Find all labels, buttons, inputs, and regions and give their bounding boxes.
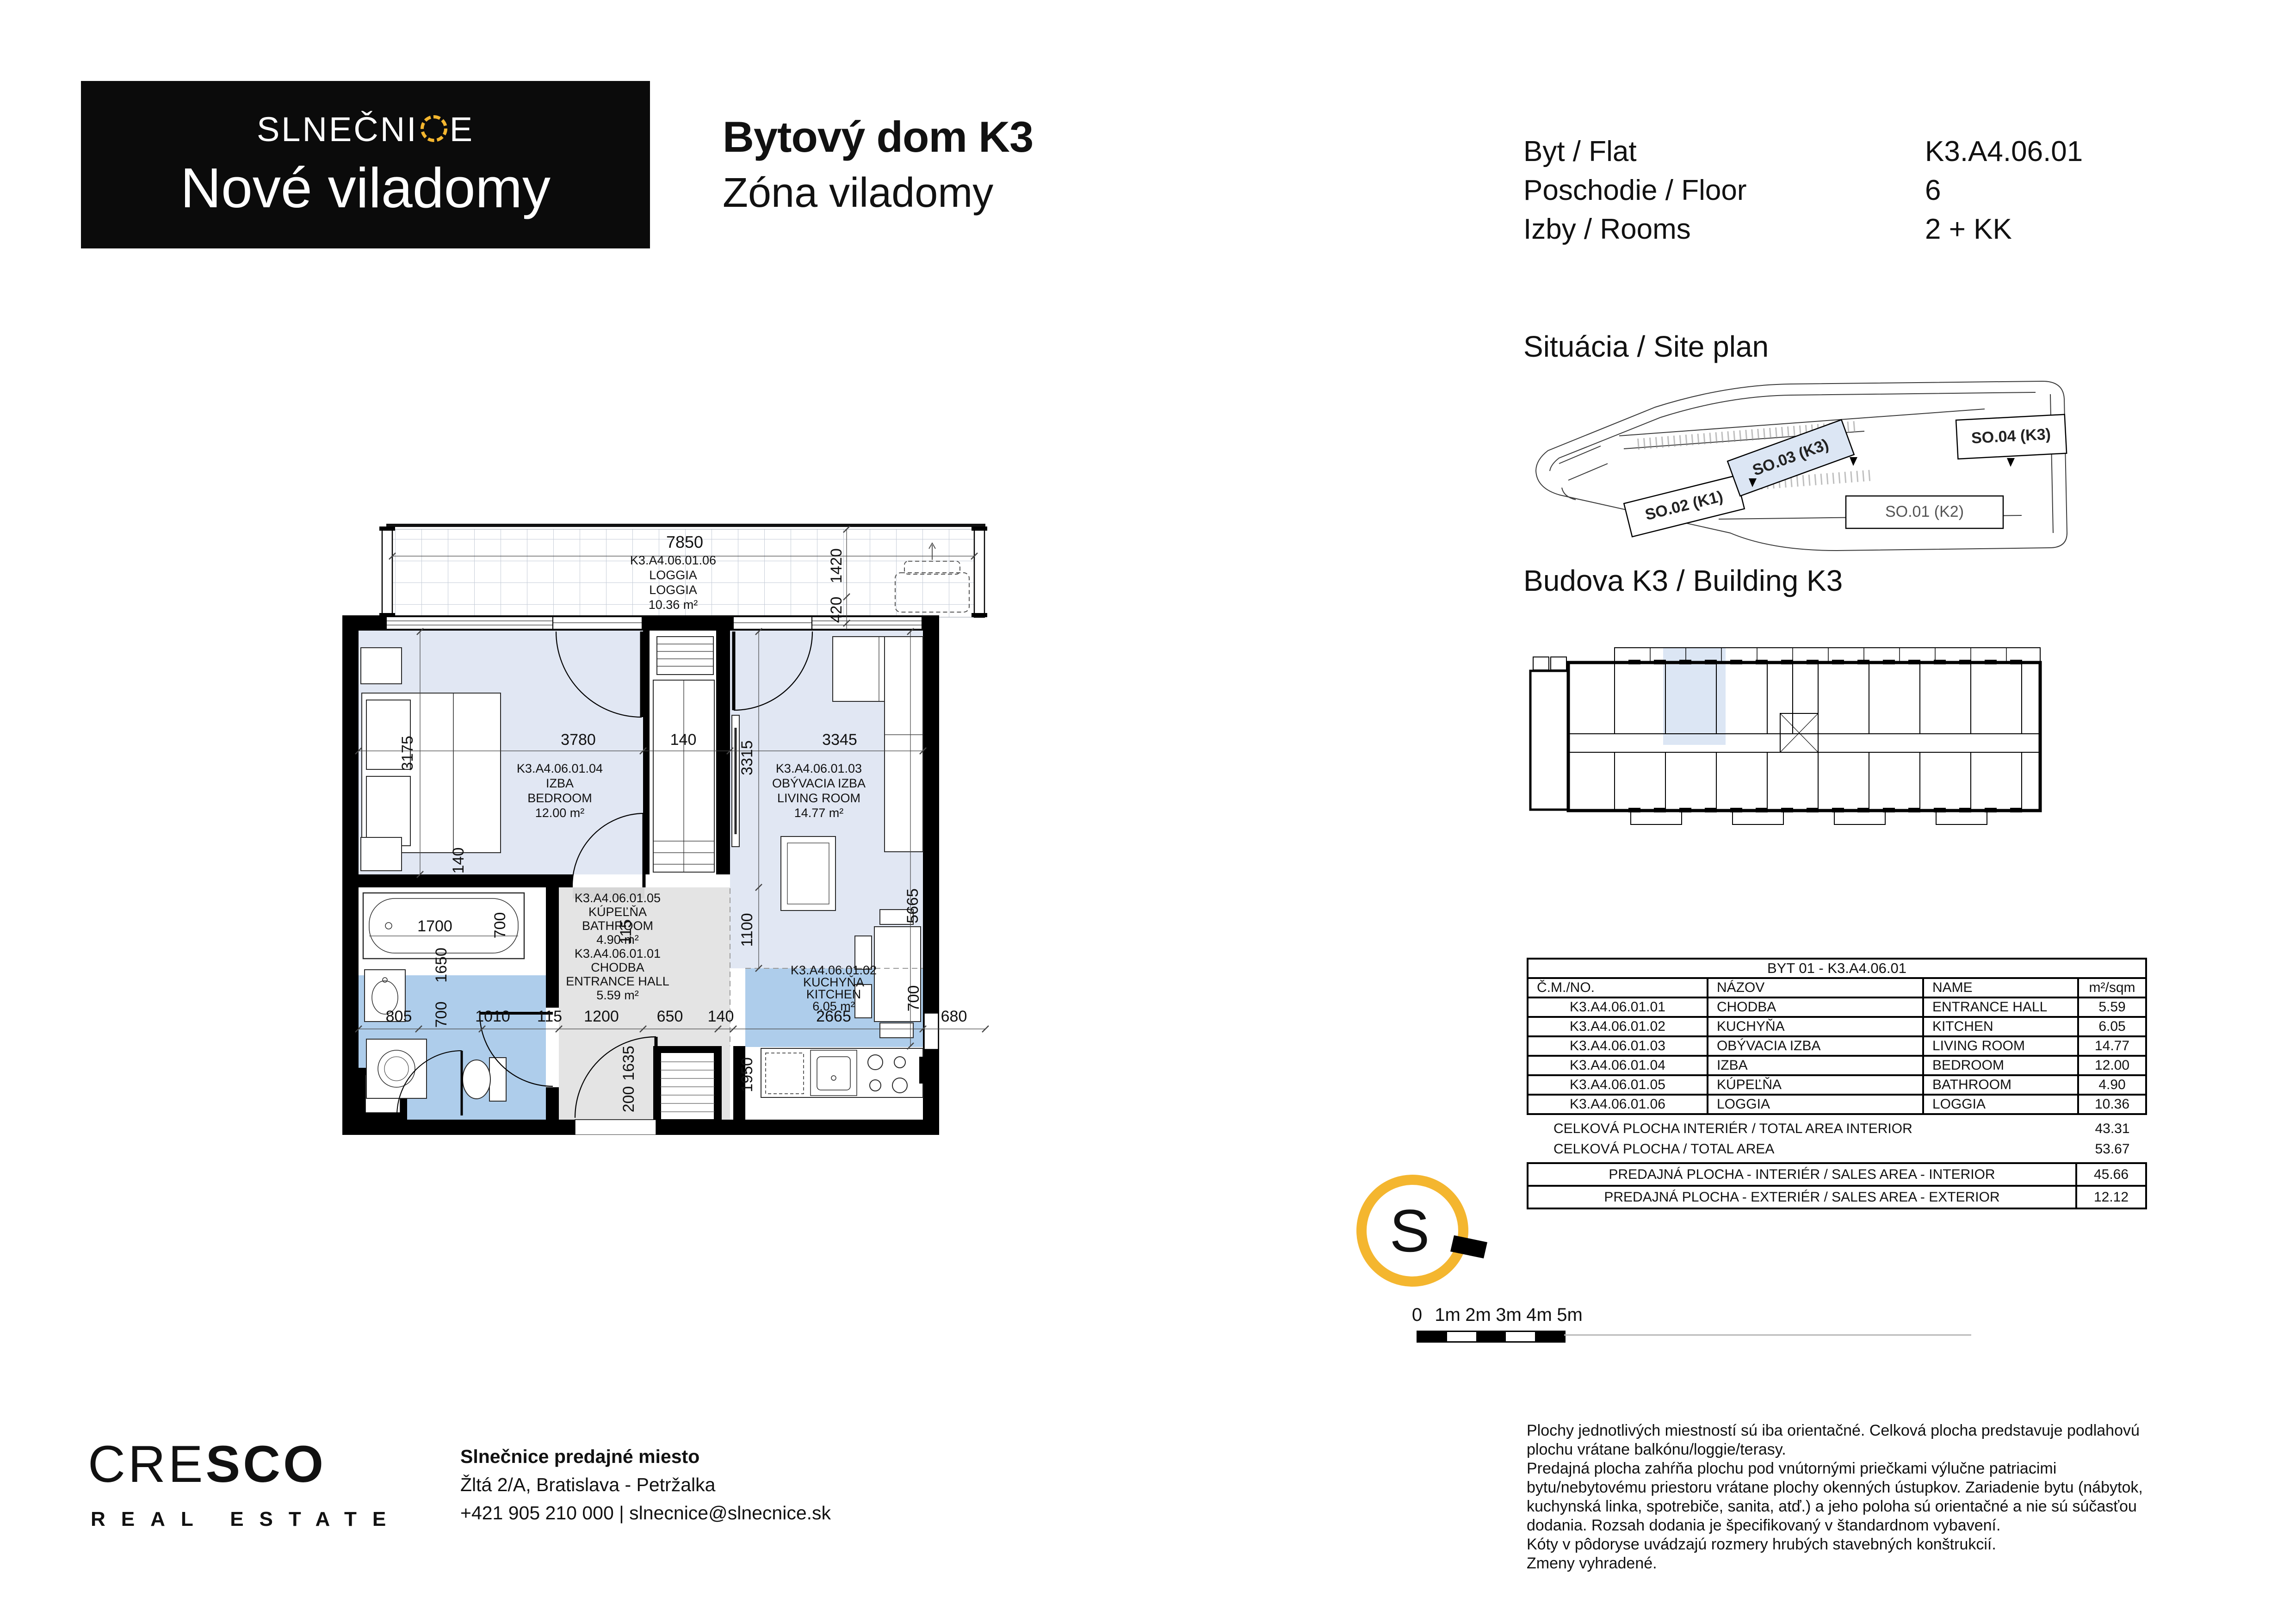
contact-name: Slnečnice predajné miesto — [460, 1443, 831, 1471]
cell-area: 6.05 — [2078, 1017, 2146, 1036]
room-name-sk: IZBA — [546, 776, 574, 790]
disclaimer-line: Predajná plocha zahŕňa plochu pod vnútor… — [1527, 1459, 2258, 1478]
flat-row: Poschodie / Floor6 — [1523, 174, 2083, 213]
cresco-wordmark: CRESCO — [88, 1434, 402, 1494]
chair — [880, 1023, 913, 1038]
scale-label: 4m — [1526, 1305, 1552, 1326]
dim: 7850 — [666, 533, 703, 551]
dim: 680 — [941, 1008, 967, 1025]
pillow — [366, 776, 410, 846]
dim: 3175 — [399, 736, 416, 771]
cell-no: K3.A4.06.01.03 — [1528, 1036, 1708, 1056]
cell-sk: KUCHYŇA — [1708, 1017, 1923, 1036]
disclaimer-line: Zmeny vyhradené. — [1527, 1554, 2258, 1573]
scale-labels: 0 1m 2m 3m 4m 5m — [1417, 1305, 1574, 1325]
dim: 1700 — [417, 917, 452, 935]
loggia-railing — [386, 524, 985, 527]
room-area: 6.05 m² — [812, 999, 855, 1013]
stair-shaft — [661, 1053, 714, 1120]
room-code: K3.A4.06.01.06 — [630, 553, 716, 567]
cresco-bold: SCO — [205, 1435, 326, 1493]
room-name-sk: LOGGIA — [649, 568, 697, 582]
dim: 140 — [450, 848, 467, 874]
dim: 1200 — [584, 1008, 619, 1025]
total-label: CELKOVÁ PLOCHA / TOTAL AREA — [1553, 1141, 2078, 1157]
total-row: CELKOVÁ PLOCHA / TOTAL AREA 53.67 — [1527, 1139, 2147, 1159]
table-row: K3.A4.06.01.01 CHODBA ENTRANCE HALL 5.59 — [1528, 997, 2146, 1017]
scale-segment — [1506, 1332, 1535, 1341]
sales-area-row: PREDAJNÁ PLOCHA - EXTERIÉR / SALES AREA … — [1527, 1185, 2147, 1209]
site-building-so02: SO.02 (K1) — [1624, 476, 1744, 537]
brand-subtitle: Nové viladomy — [180, 155, 551, 220]
dim: 3345 — [822, 731, 857, 749]
room-code: K3.A4.06.01.05 — [575, 891, 661, 905]
brand-name-pre: SLNEČNI — [257, 110, 418, 149]
dim: 420 — [828, 597, 845, 623]
compass: S — [1349, 1166, 1497, 1300]
cell-area: 5.59 — [2078, 997, 2146, 1017]
flat-label: Poschodie / Floor — [1523, 174, 1925, 207]
scale-label: 5m — [1557, 1305, 1583, 1326]
dim: 805 — [386, 1008, 412, 1025]
flat-value: 6 — [1925, 174, 1941, 206]
col-header: NÁZOV — [1708, 978, 1923, 997]
disclaimer-line: Plochy jednotlivých miestností sú iba or… — [1527, 1421, 2258, 1440]
building-windows-bottom — [1619, 808, 2036, 812]
dim: 5665 — [904, 888, 922, 923]
area-table: BYT 01 - K3.A4.06.01 Č.M./NO. NÁZOV NAME… — [1527, 958, 2147, 1209]
scale-segment — [1418, 1332, 1447, 1341]
dim: 1010 — [475, 1008, 510, 1025]
dresser — [361, 837, 402, 871]
cell-no: K3.A4.06.01.02 — [1528, 1017, 1708, 1036]
table-title: BYT 01 - K3.A4.06.01 — [1528, 959, 2146, 978]
site-building-so04: SO.04 (K3) — [1956, 415, 2067, 459]
room-area: 10.36 m² — [649, 598, 698, 612]
dim: 700 — [433, 1002, 450, 1028]
room-code: K3.A4.06.01.01 — [575, 947, 661, 960]
site-plan-map: SO.02 (K1) SO.03 (K3) SO.04 (K3) SO.01 (… — [1531, 380, 2073, 555]
total-value: 45.66 — [2075, 1164, 2145, 1185]
room-area: 14.77 m² — [794, 806, 844, 820]
cell-sk: OBÝVACIA IZBA — [1708, 1036, 1923, 1056]
kitchen-vent — [919, 1057, 924, 1084]
dim: 140 — [708, 1008, 734, 1025]
cell-en: ENTRANCE HALL — [1923, 997, 2078, 1017]
total-value: 53.67 — [2078, 1141, 2147, 1157]
disclaimer-line: plochu vrátane balkónu/loggie/terasy. — [1527, 1440, 2258, 1459]
dim: 650 — [657, 1008, 683, 1025]
room-code: K3.A4.06.01.04 — [517, 762, 603, 775]
floorplan-sheet: SLNEČNIE Nové viladomy Bytový dom K3 Zón… — [0, 0, 2296, 1623]
dim: 700 — [905, 985, 922, 1012]
disclaimer-line: dodania. Rozsah dodania je špecifikovaný… — [1527, 1516, 2258, 1535]
dim: 1950 — [738, 1057, 756, 1092]
col-header: Č.M./NO. — [1528, 978, 1708, 997]
table-row: K3.A4.06.01.05 KÚPEĽŇA BATHROOM 4.90 — [1528, 1075, 2146, 1095]
flat-info: Byt / FlatK3.A4.06.01 Poschodie / Floor6… — [1523, 135, 2083, 252]
flat-floor-plan: 7850 1420 420 3780 140 3345 3175 140 331… — [342, 517, 990, 1135]
bedroom-window — [386, 617, 553, 629]
room-name-en: BATHROOM — [582, 919, 653, 933]
dim: 1100 — [738, 913, 756, 947]
cell-sk: KÚPEĽŇA — [1708, 1075, 1923, 1095]
cell-area: 12.00 — [2078, 1056, 2146, 1075]
brand-name-post: E — [450, 110, 474, 149]
room-name-en: LOGGIA — [649, 583, 697, 597]
cell-no: K3.A4.06.01.01 — [1528, 997, 1708, 1017]
cell-area: 4.90 — [2078, 1075, 2146, 1095]
cell-en: LOGGIA — [1923, 1095, 2078, 1114]
flat-value: 2 + KK — [1925, 213, 2012, 245]
scale-segment — [1535, 1332, 1564, 1341]
total-row: CELKOVÁ PLOCHA INTERIÉR / TOTAL AREA INT… — [1527, 1119, 2147, 1139]
dim: 3315 — [738, 740, 756, 775]
dim: 115 — [537, 1008, 562, 1025]
scale-bar — [1417, 1331, 1566, 1343]
dim: 140 — [670, 731, 697, 749]
disclaimer: Plochy jednotlivých miestností sú iba or… — [1527, 1421, 2258, 1573]
scale-segment — [1476, 1332, 1505, 1341]
flat-value: K3.A4.06.01 — [1925, 136, 2083, 167]
table-row: K3.A4.06.01.02 KUCHYŇA KITCHEN 6.05 — [1528, 1017, 2146, 1036]
sun-icon — [421, 115, 447, 142]
table-row: K3.A4.06.01.06 LOGGIA LOGGIA 10.36 — [1528, 1095, 2146, 1114]
total-value: 43.31 — [2078, 1121, 2147, 1137]
cell-en: BATHROOM — [1923, 1075, 2078, 1095]
contact-block: Slnečnice predajné miesto Žltá 2/A, Brat… — [460, 1443, 831, 1527]
total-label: PREDAJNÁ PLOCHA - INTERIÉR / SALES AREA … — [1529, 1164, 2075, 1185]
brand-logo: SLNEČNIE Nové viladomy — [81, 81, 650, 248]
total-label: PREDAJNÁ PLOCHA - EXTERIÉR / SALES AREA … — [1529, 1187, 2075, 1208]
cell-no: K3.A4.06.01.05 — [1528, 1075, 1708, 1095]
cresco-logo: CRESCO REAL ESTATE — [88, 1434, 402, 1531]
toilet — [489, 1058, 506, 1101]
scale-segment — [1447, 1332, 1476, 1341]
disclaimer-line: kuchynská linka, spotrebiče, sanita, atď… — [1527, 1497, 2258, 1516]
room-code: K3.A4.06.01.03 — [776, 762, 862, 775]
site-building-so01: SO.01 (K2) — [1846, 496, 2003, 528]
dim: 3780 — [561, 731, 596, 749]
page-subtitle: Zóna viladomy — [723, 169, 1033, 217]
cell-en: LIVING ROOM — [1923, 1036, 2078, 1056]
table-row: K3.A4.06.01.03 OBÝVACIA IZBA LIVING ROOM… — [1528, 1036, 2146, 1056]
dim: 700 — [491, 912, 509, 939]
table-header-row: Č.M./NO. NÁZOV NAME m²/sqm — [1528, 978, 2146, 997]
bedside-table — [361, 648, 402, 684]
washing-machine — [366, 1039, 427, 1098]
scale-extension-line — [1564, 1334, 1971, 1336]
cell-sk: IZBA — [1708, 1056, 1923, 1075]
contact-address: Žltá 2/A, Bratislava - Petržalka — [460, 1471, 831, 1499]
room-name-sk: CHODBA — [591, 960, 644, 974]
sofa-side — [885, 637, 923, 852]
building-heading: Budova K3 / Building K3 — [1523, 564, 1843, 598]
total-label: CELKOVÁ PLOCHA INTERIÉR / TOTAL AREA INT… — [1553, 1121, 2078, 1137]
scale-label: 0 — [1412, 1305, 1422, 1326]
room-area: 5.59 m² — [596, 988, 639, 1002]
table-row: K3.A4.06.01.04 IZBA BEDROOM 12.00 — [1528, 1056, 2146, 1075]
building-windows-top — [1619, 660, 2036, 664]
col-header: NAME — [1923, 978, 2078, 997]
disclaimer-line: Kóty v pôdoryse uvádzajú rozmery hrubých… — [1527, 1535, 2258, 1554]
document-title: Bytový dom K3 Zóna viladomy — [723, 112, 1033, 217]
cell-area: 10.36 — [2078, 1095, 2146, 1114]
cell-area: 14.77 — [2078, 1036, 2146, 1056]
page-title: Bytový dom K3 — [723, 112, 1033, 162]
cresco-subtitle: REAL ESTATE — [91, 1508, 402, 1531]
compass-letter: S — [1390, 1197, 1430, 1264]
room-name-sk: KÚPEĽŇA — [588, 904, 647, 919]
total-value: 12.12 — [2075, 1187, 2145, 1208]
room-area: 4.90 m² — [596, 933, 639, 947]
room-name-en: LIVING ROOM — [777, 791, 860, 805]
cell-sk: LOGGIA — [1708, 1095, 1923, 1114]
building-structure — [1530, 648, 2040, 824]
flat-label: Byt / Flat — [1523, 135, 1925, 168]
kitchen-furniture — [761, 1048, 924, 1097]
scale-label: 2m — [1465, 1305, 1491, 1326]
coffee-table — [781, 836, 835, 911]
site-plan-heading: Situácia / Site plan — [1523, 329, 1769, 364]
closet-strip — [653, 637, 714, 872]
dim: 1635 — [620, 1046, 637, 1081]
room-area: 12.00 m² — [535, 806, 585, 820]
flat-row: Izby / Rooms2 + KK — [1523, 213, 2083, 252]
dim: 1420 — [828, 548, 845, 583]
dim: 200 — [620, 1086, 637, 1113]
room-name-en: ENTRANCE HALL — [566, 974, 669, 988]
area-table-grid: BYT 01 - K3.A4.06.01 Č.M./NO. NÁZOV NAME… — [1527, 958, 2147, 1115]
room-name-en: BEDROOM — [527, 791, 592, 805]
scale-label: 1m — [1435, 1305, 1461, 1326]
disclaimer-line: bytu/nebytovému priestoru vrátane plochy… — [1527, 1478, 2258, 1497]
dim: 1650 — [433, 948, 450, 983]
cell-no: K3.A4.06.01.04 — [1528, 1056, 1708, 1075]
building-overview-plan — [1527, 643, 2045, 830]
cell-no: K3.A4.06.01.06 — [1528, 1095, 1708, 1114]
sales-area-row: PREDAJNÁ PLOCHA - INTERIÉR / SALES AREA … — [1527, 1162, 2147, 1187]
cell-sk: CHODBA — [1708, 997, 1923, 1017]
cresco-thin: CRE — [88, 1435, 205, 1493]
room-name-sk: OBÝVACIA IZBA — [772, 776, 866, 790]
table-title-row: BYT 01 - K3.A4.06.01 — [1528, 959, 2146, 978]
col-header: m²/sqm — [2078, 978, 2146, 997]
brand-name: SLNEČNIE — [257, 110, 474, 149]
scale-label: 3m — [1496, 1305, 1522, 1326]
cell-en: BEDROOM — [1923, 1056, 2078, 1075]
site-building-label: SO.01 (K2) — [1885, 503, 1964, 520]
flat-row: Byt / FlatK3.A4.06.01 — [1523, 135, 2083, 174]
contact-phone-email: +421 905 210 000 | slnecnice@slnecnice.s… — [460, 1499, 831, 1527]
flat-label: Izby / Rooms — [1523, 213, 1925, 246]
cell-en: KITCHEN — [1923, 1017, 2078, 1036]
radiator — [657, 637, 713, 675]
